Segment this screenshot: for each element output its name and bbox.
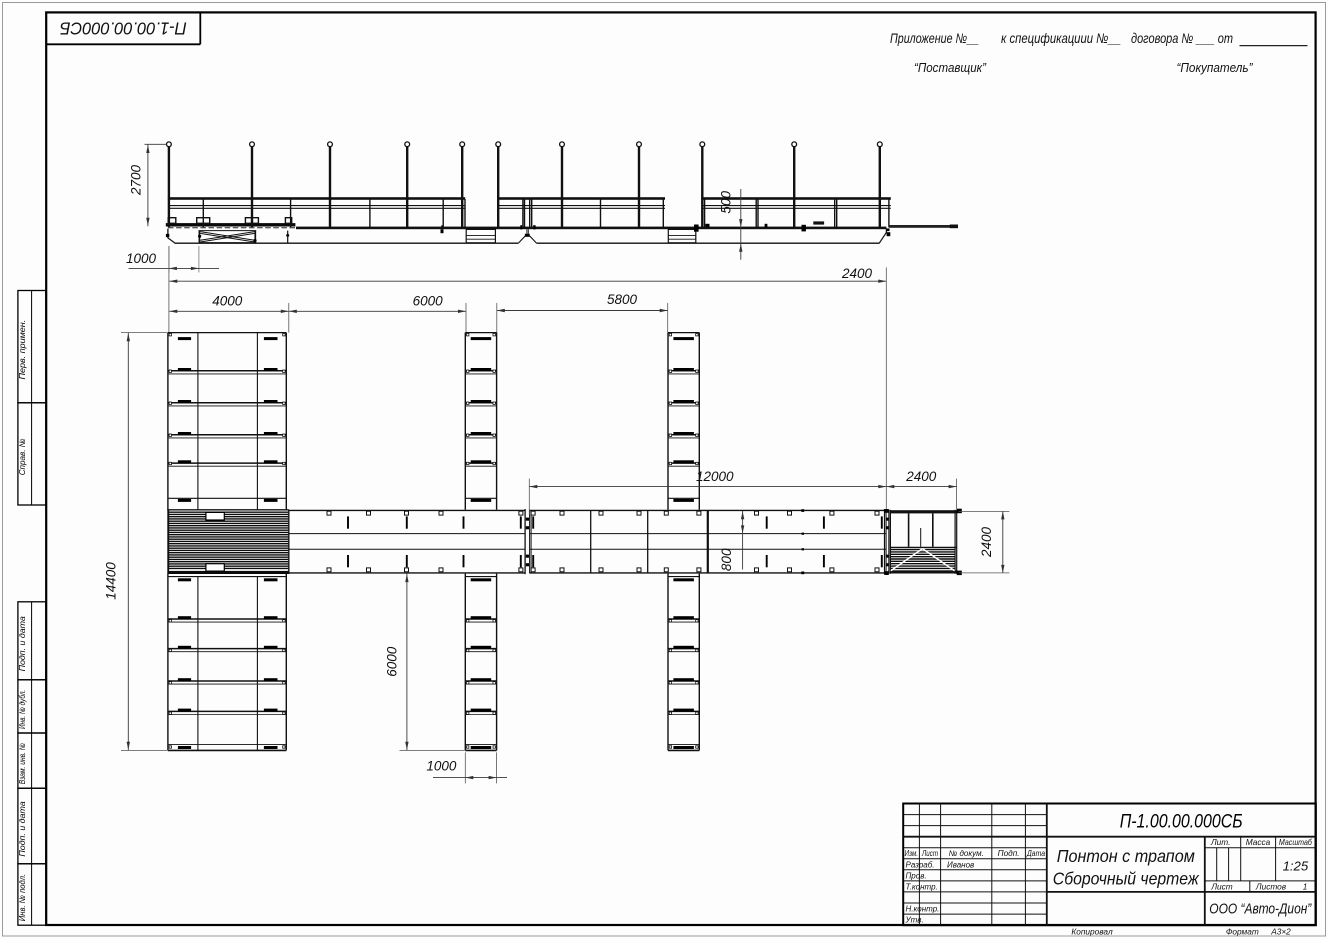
svg-text:“Покупатель”: “Покупатель” [1177, 60, 1254, 75]
svg-text:Подп. и дата: Подп. и дата [18, 801, 27, 857]
svg-text:Приложение №__: Приложение №__ [890, 31, 979, 46]
svg-text:6000: 6000 [413, 294, 444, 309]
svg-text:5800: 5800 [607, 292, 638, 307]
svg-text:2700: 2700 [128, 164, 143, 196]
svg-text:Лит.: Лит. [1210, 837, 1230, 847]
svg-text:4000: 4000 [212, 294, 243, 309]
svg-text:2400: 2400 [905, 469, 937, 484]
svg-text:Изм.: Изм. [905, 849, 919, 858]
svg-text:1:25: 1:25 [1283, 859, 1309, 874]
svg-text:ООО “Авто-Дион”: ООО “Авто-Дион” [1209, 902, 1312, 918]
svg-text:П-1.00.00.000СБ: П-1.00.00.000СБ [60, 18, 187, 38]
svg-text:Листов: Листов [1255, 882, 1287, 892]
svg-text:А3×2: А3×2 [1270, 926, 1291, 936]
svg-text:Сборочный чертеж: Сборочный чертеж [1053, 869, 1200, 889]
svg-text:Понтон с трапом: Понтон с трапом [1057, 846, 1195, 866]
svg-text:Лист: Лист [921, 849, 938, 858]
svg-text:2400: 2400 [841, 266, 873, 281]
svg-text:1000: 1000 [126, 251, 157, 266]
svg-text:1000: 1000 [426, 758, 457, 773]
svg-text:Масса: Масса [1246, 837, 1271, 847]
svg-text:14400: 14400 [104, 562, 119, 600]
svg-text:Инв. № дубл.: Инв. № дубл. [18, 690, 27, 729]
svg-text:Утв.: Утв. [905, 916, 924, 925]
svg-text:Н.контр.: Н.контр. [906, 905, 940, 914]
svg-text:Масштаб: Масштаб [1279, 837, 1312, 847]
svg-text:Дата: Дата [1026, 849, 1045, 858]
svg-text:Справ. №: Справ. № [18, 438, 27, 475]
svg-text:Подп. и дата: Подп. и дата [18, 616, 27, 672]
svg-text:договора № ___ от: договора № ___ от [1131, 31, 1233, 46]
svg-text:Инв. № подл.: Инв. № подл. [18, 874, 27, 921]
svg-text:Копировал: Копировал [1071, 926, 1113, 936]
svg-text:6000: 6000 [385, 646, 400, 677]
svg-text:1: 1 [1303, 882, 1308, 892]
svg-text:Разраб.: Разраб. [906, 861, 935, 870]
svg-text:Лист: Лист [1210, 882, 1232, 892]
svg-text:“Поставщик”: “Поставщик” [914, 60, 987, 75]
svg-text:2400: 2400 [979, 526, 994, 558]
svg-text:Подп.: Подп. [998, 849, 1020, 858]
svg-text:Пров.: Пров. [906, 872, 927, 881]
svg-text:П-1.00.00.000СБ: П-1.00.00.000СБ [1120, 811, 1243, 833]
svg-text:Взам. инв. №: Взам. инв. № [18, 743, 27, 784]
svg-text:Перв. примен.: Перв. примен. [18, 320, 27, 380]
svg-text:к спецификациии №__: к спецификациии №__ [1001, 31, 1121, 46]
svg-text:Иванов: Иванов [947, 861, 974, 870]
svg-text:500: 500 [719, 191, 734, 214]
svg-text:Формат: Формат [1226, 926, 1259, 936]
svg-text:Т.контр.: Т.контр. [906, 883, 938, 892]
svg-text:№ докум.: № докум. [949, 849, 984, 858]
svg-text:12000: 12000 [696, 469, 734, 484]
svg-text:800: 800 [719, 548, 734, 571]
